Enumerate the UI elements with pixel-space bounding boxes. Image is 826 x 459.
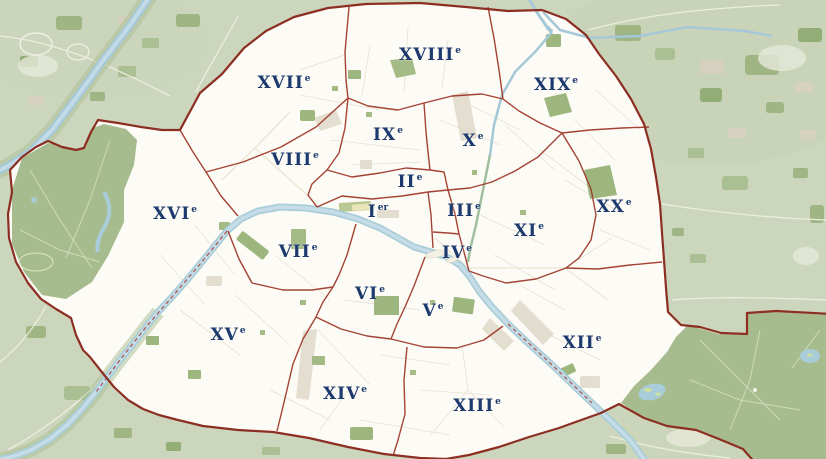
paris-arrondissement-map: IerIIeIIIeIVeVeVIeVIIeVIIIeIXeXeXIeXIIeX…: [0, 0, 826, 459]
map-canvas: [0, 0, 826, 459]
lake-des-minimes: [800, 349, 820, 363]
